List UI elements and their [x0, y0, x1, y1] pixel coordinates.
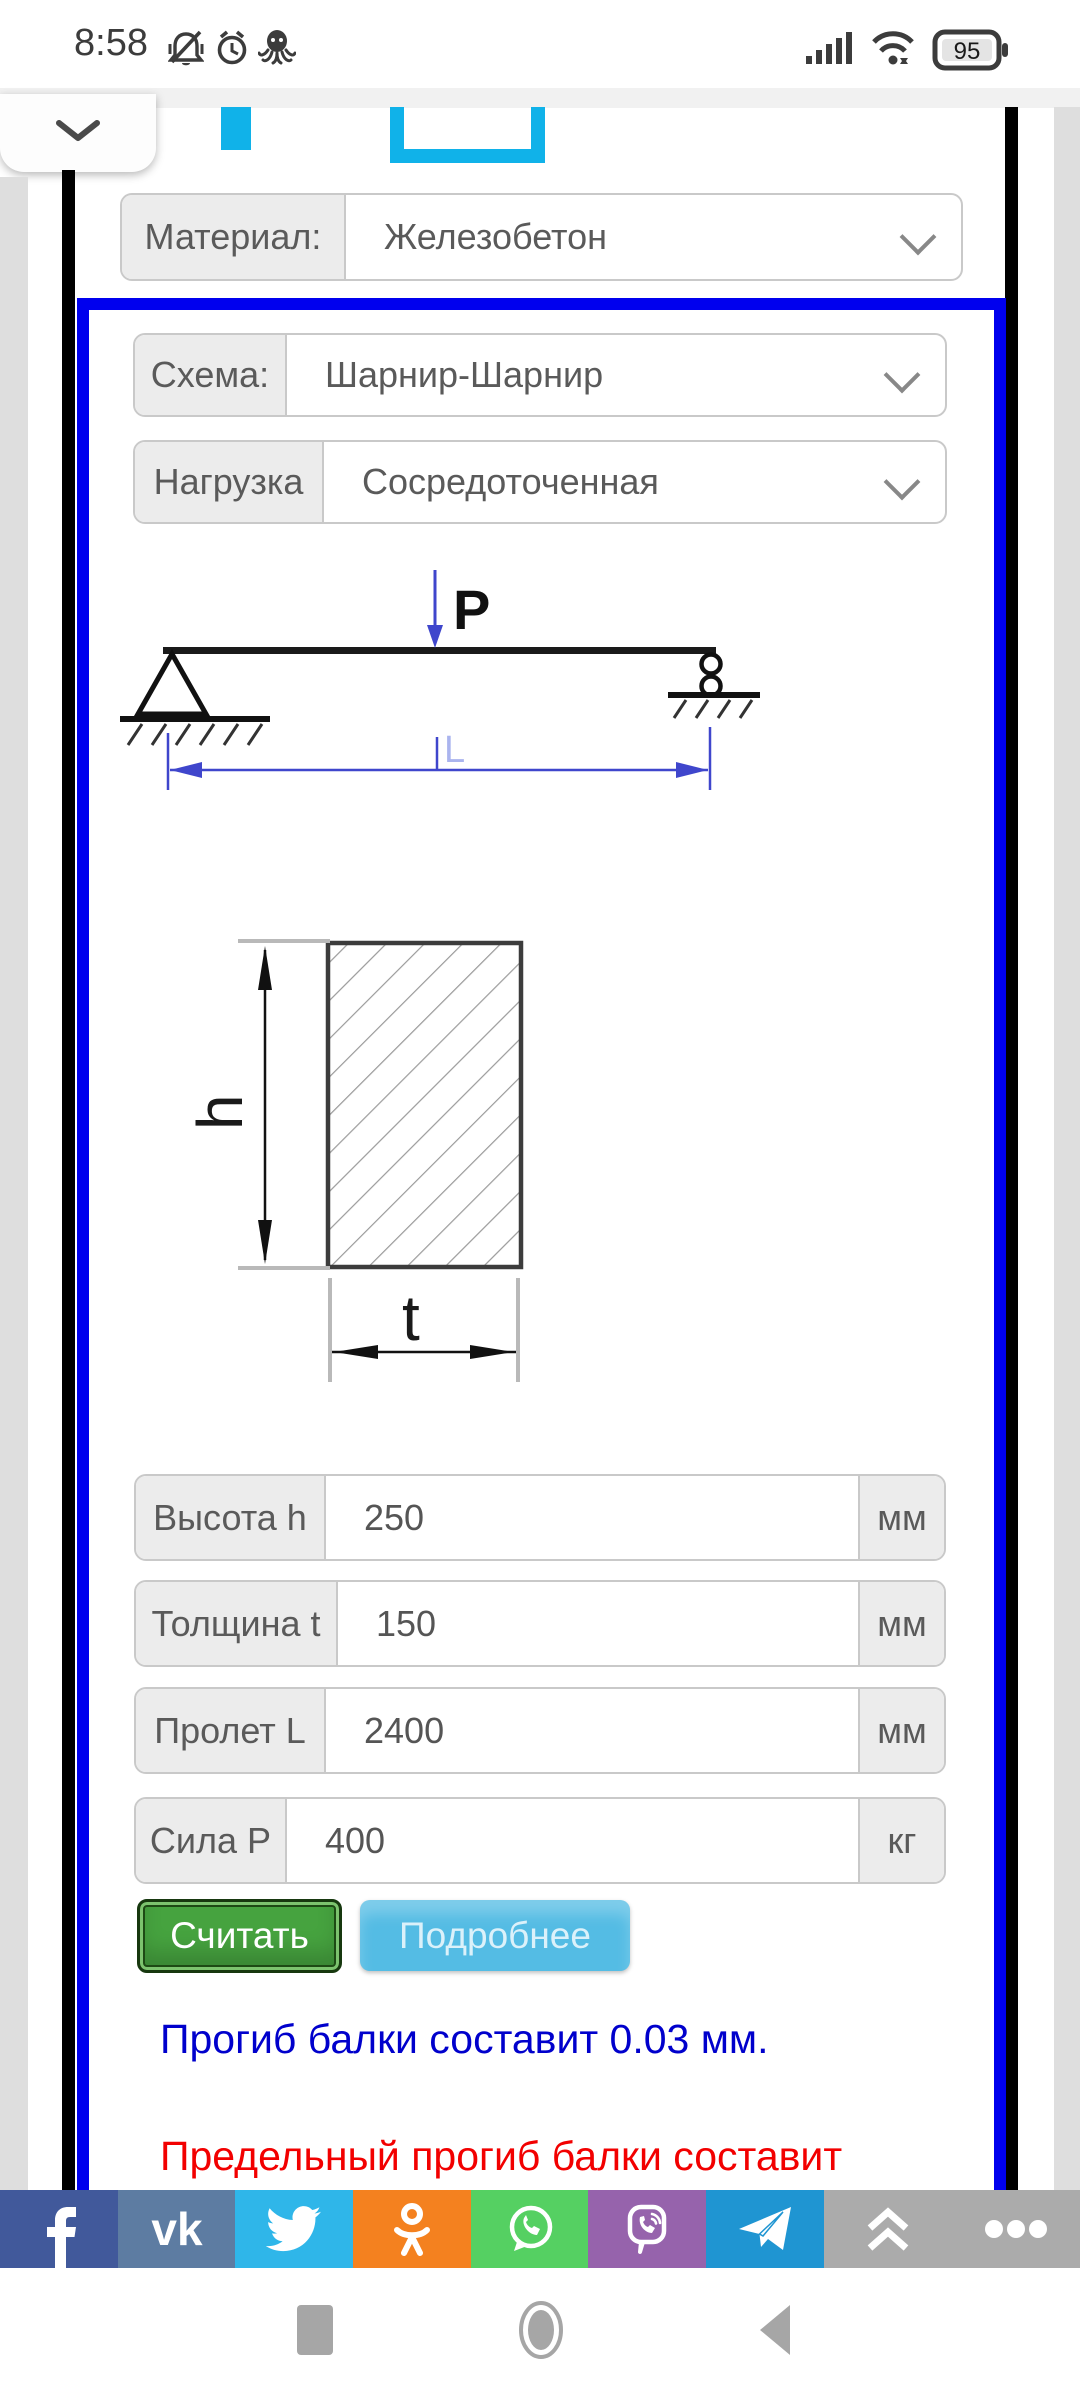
span-input[interactable]: [326, 1689, 858, 1772]
deflection-result-text: Прогиб балки составит 0.03 мм.: [160, 2016, 769, 2063]
thickness-row: Толщина t мм: [134, 1580, 946, 1667]
thickness-label: t: [402, 1282, 420, 1354]
height-label: Высота h: [136, 1476, 326, 1559]
load-row: Нагрузка Сосредоточенная: [133, 440, 947, 524]
share-twitter-button[interactable]: [235, 2190, 353, 2268]
phone-screen: 8:58: [0, 0, 1080, 2400]
octopus-app-icon: [258, 28, 296, 68]
page-border-left: [62, 170, 75, 2190]
vibrate-muted-icon: [168, 28, 204, 68]
height-unit: мм: [858, 1476, 944, 1559]
material-select[interactable]: Железобетон: [346, 195, 905, 279]
android-nav-bar: [0, 2268, 1080, 2400]
share-whatsapp-button[interactable]: [471, 2190, 589, 2268]
height-input[interactable]: [326, 1476, 858, 1559]
more-dots-icon: [984, 2218, 1048, 2240]
share-collapse-button[interactable]: [824, 2190, 952, 2268]
scheme-row: Схема: Шарнир-Шарнир: [133, 333, 947, 417]
telegram-icon: [736, 2202, 794, 2256]
recents-button[interactable]: [296, 2304, 334, 2356]
calculate-button[interactable]: Считать: [137, 1899, 342, 1973]
clock-text: 8:58: [74, 22, 148, 65]
page-background-right: [1054, 107, 1080, 2190]
load-label: Нагрузка: [135, 442, 324, 522]
share-bar: vk: [0, 2190, 1080, 2268]
span-dimension: [168, 727, 710, 790]
left-support-hatch: [128, 724, 262, 745]
chevron-down-icon: [900, 219, 937, 256]
odnoklassniki-icon: [386, 2201, 438, 2257]
beam-scheme-diagram: P L: [120, 555, 820, 805]
scheme-label: Схема:: [135, 335, 287, 415]
facebook-icon: [33, 2207, 85, 2268]
twitter-icon: [266, 2205, 322, 2253]
truncated-graphic-bar: [221, 107, 251, 150]
share-odnoklassniki-button[interactable]: [353, 2190, 471, 2268]
chevron-down-icon: [56, 120, 100, 142]
height-label: h: [184, 1094, 256, 1130]
battery-percent-text: 95: [954, 38, 981, 65]
double-chevron-up-icon: [862, 2204, 914, 2254]
span-unit: мм: [858, 1689, 944, 1772]
back-button[interactable]: [756, 2304, 792, 2356]
share-extra-zone: [824, 2190, 1080, 2268]
viber-icon: [619, 2201, 675, 2257]
force-row: Сила P кг: [134, 1797, 946, 1884]
load-select[interactable]: Сосредоточенная: [324, 442, 889, 522]
cross-section-diagram: h t: [180, 920, 580, 1390]
battery-icon: 95: [932, 28, 1012, 72]
scheme-select[interactable]: Шарнир-Шарнир: [287, 335, 889, 415]
limit-result-text: Предельный прогиб балки составит: [160, 2133, 842, 2180]
details-button[interactable]: Подробнее: [360, 1900, 630, 1971]
force-label: P: [453, 578, 490, 641]
alarm-icon: [214, 28, 250, 68]
span-label: Пролет L: [136, 1689, 326, 1772]
page-border-right: [1005, 107, 1018, 2190]
force-input[interactable]: [287, 1799, 858, 1882]
share-facebook-button[interactable]: [0, 2190, 118, 2268]
span-row: Пролет L мм: [134, 1687, 946, 1774]
chevron-down-icon: [884, 464, 921, 501]
vk-icon: vk: [137, 2203, 217, 2255]
truncated-graphic-bracket: [390, 107, 545, 163]
whatsapp-icon: [502, 2201, 558, 2257]
height-row: Высота h мм: [134, 1474, 946, 1561]
thickness-unit: мм: [858, 1582, 944, 1665]
chevron-down-icon: [884, 357, 921, 394]
force-unit: кг: [858, 1799, 944, 1882]
thickness-label: Толщина t: [136, 1582, 338, 1665]
collapse-panel-button[interactable]: [0, 94, 156, 172]
material-row: Материал: Железобетон: [120, 193, 963, 281]
share-telegram-button[interactable]: [706, 2190, 824, 2268]
home-button[interactable]: [518, 2300, 564, 2360]
wifi-icon: [868, 28, 920, 70]
span-label: L: [444, 729, 465, 771]
material-label: Материал:: [122, 195, 346, 279]
svg-text:vk: vk: [151, 2203, 203, 2255]
right-support-hatch: [674, 700, 752, 718]
share-vk-button[interactable]: vk: [118, 2190, 236, 2268]
force-label: Сила P: [136, 1799, 287, 1882]
signal-icon: [806, 28, 854, 68]
page-background-left: [0, 177, 28, 2190]
share-viber-button[interactable]: [588, 2190, 706, 2268]
share-more-button[interactable]: [952, 2190, 1080, 2268]
thickness-input[interactable]: [338, 1582, 858, 1665]
status-bar: 8:58: [0, 0, 1080, 88]
header-strip: [0, 88, 1080, 108]
